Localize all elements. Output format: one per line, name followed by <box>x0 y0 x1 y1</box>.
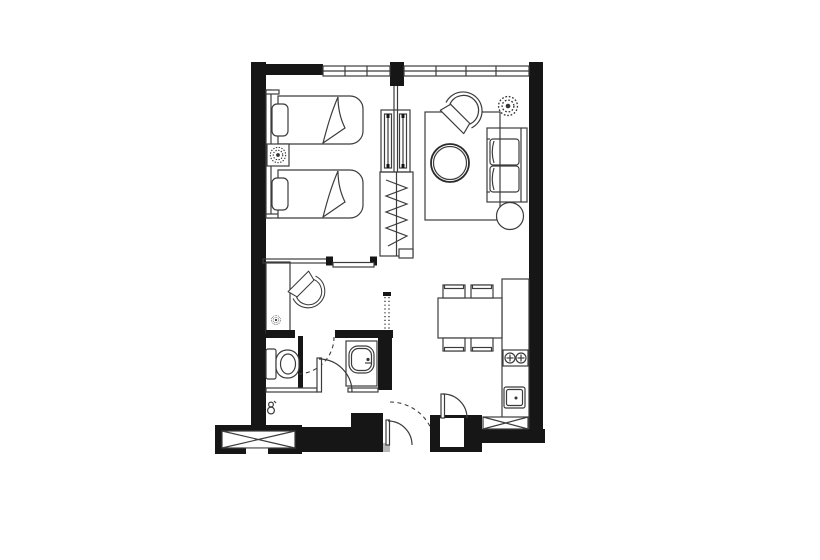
bed-1 <box>272 96 363 144</box>
pocket-track <box>383 292 391 334</box>
glass-panel-right <box>400 114 407 168</box>
dining-table <box>438 298 502 338</box>
kitchen-sink <box>504 387 525 408</box>
glass-partition <box>381 86 410 172</box>
coffee-table <box>431 144 469 182</box>
pillow <box>272 104 288 136</box>
shaft-right <box>483 417 528 429</box>
toilet <box>266 349 299 379</box>
bathroom-door <box>317 358 352 392</box>
entry-door <box>386 402 435 447</box>
bedroom <box>266 90 363 218</box>
dining-area <box>438 285 502 351</box>
bathroom <box>266 330 393 392</box>
kitchen-door <box>441 394 467 418</box>
nightstand <box>267 144 289 166</box>
window-left <box>323 66 390 76</box>
door-stop-glyph <box>268 401 276 414</box>
wardrobe <box>380 172 413 258</box>
dining-chair <box>443 338 465 351</box>
ottoman <box>497 203 524 230</box>
dining-chair <box>471 338 493 351</box>
washbasin <box>346 341 377 386</box>
window-right <box>404 66 529 76</box>
dining-chair <box>471 285 493 298</box>
lounge-chair <box>439 84 490 135</box>
corridor <box>268 401 276 414</box>
dining-chair <box>443 285 465 298</box>
small-plant-icon <box>272 316 281 325</box>
glass-panel-left <box>385 114 392 168</box>
north-windows <box>323 66 529 76</box>
hall <box>266 262 391 334</box>
plant-icon <box>499 97 518 116</box>
kitchen <box>502 279 529 428</box>
shaft-left <box>215 425 302 455</box>
desk-chair <box>287 270 332 315</box>
pillow <box>272 178 288 210</box>
floor-plan-page <box>0 0 820 560</box>
floor-plan-drawing <box>0 0 820 560</box>
stove <box>503 350 528 366</box>
living-room <box>425 84 527 229</box>
sliding-door-leaf <box>333 263 374 268</box>
bed-2 <box>272 170 363 218</box>
sofa <box>487 128 527 202</box>
